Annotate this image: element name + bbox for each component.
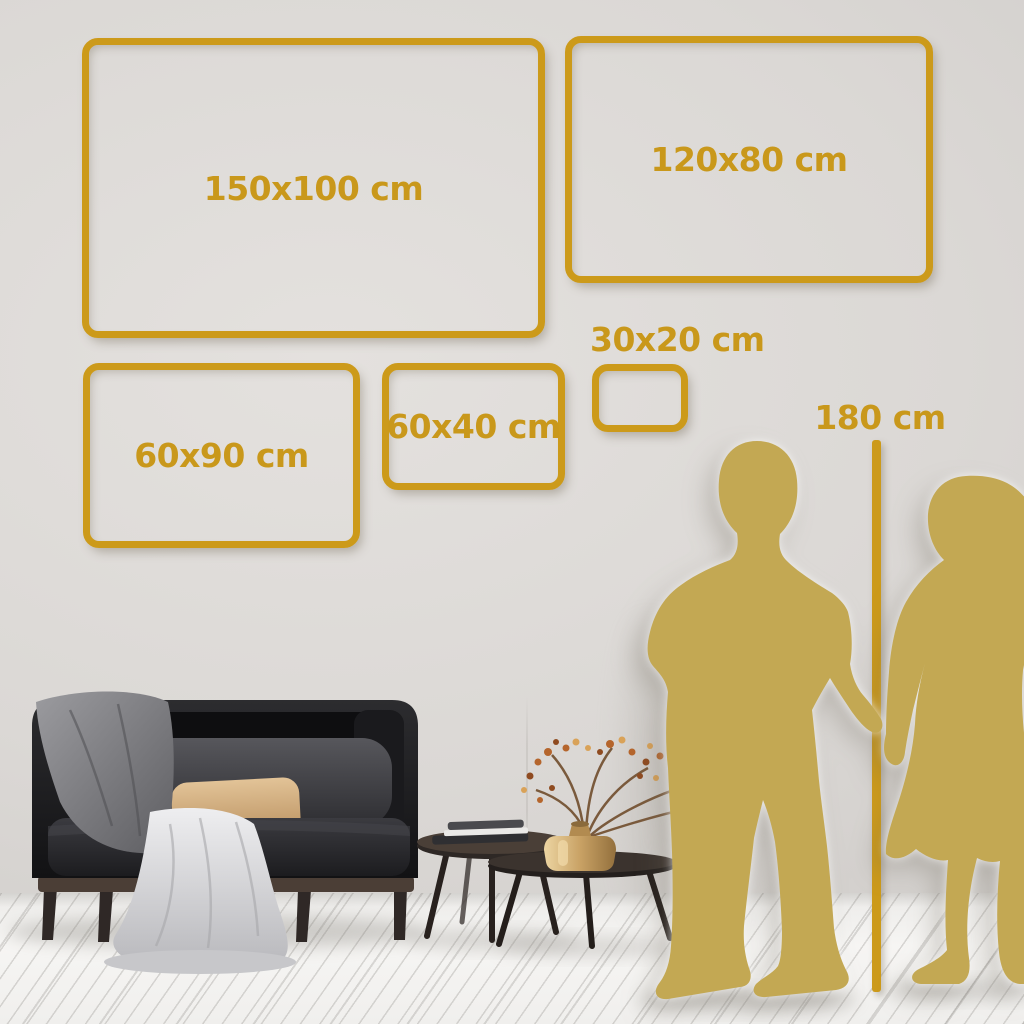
woman-silhouette — [884, 476, 1024, 984]
man-silhouette — [648, 441, 883, 999]
couple-silhouettes — [0, 0, 1024, 1024]
